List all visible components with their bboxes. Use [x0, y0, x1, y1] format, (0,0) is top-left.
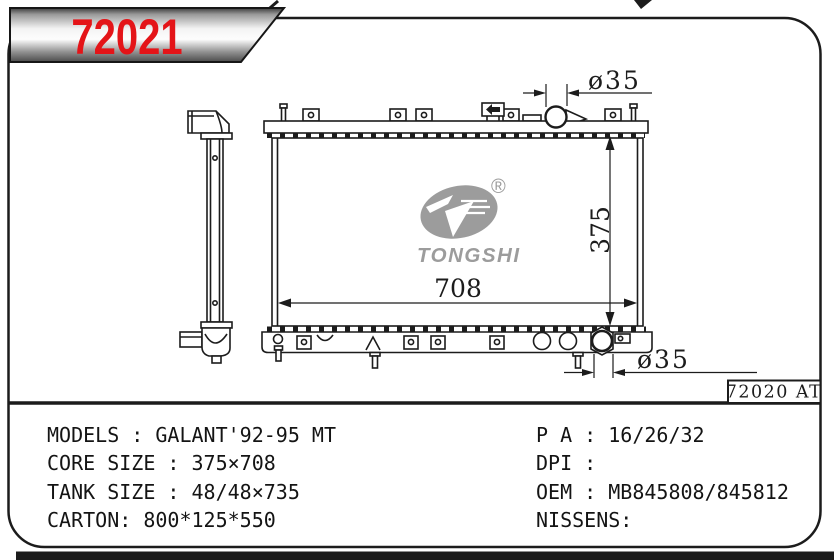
side-core: [207, 139, 223, 322]
crop-marks: [256, 0, 652, 18]
spec-carton: CARTON: 800*125*550: [47, 509, 276, 531]
core-height-label: 375: [586, 206, 615, 254]
spec-core-size: CORE SIZE : 375×708: [47, 452, 276, 474]
spec-pa: P A : 16/26/32: [536, 424, 705, 446]
spec-tank-size: TANK SIZE : 48/48×735: [47, 481, 300, 503]
catalog-page: ø35 375 708 ø35 72020 AT ® TONGSHI: [0, 0, 834, 560]
outlet-diameter-label: ø35: [637, 345, 690, 374]
spec-oem: OEM : MB845808/845812: [536, 481, 789, 503]
spec-models: MODELS : GALANT'92-95 MT: [47, 424, 336, 446]
radiator-technical-drawing: ø35 375 708 ø35 72020 AT ® TONGSHI: [0, 0, 834, 560]
logo-brand-text: TONGSHI: [417, 244, 521, 267]
inlet-diameter-label: ø35: [588, 66, 641, 95]
ref-box: 72020 AT: [726, 381, 823, 404]
spec-nissens: NISSENS:: [536, 509, 632, 531]
port-opening: [560, 333, 577, 350]
part-number: 72021: [71, 9, 182, 65]
ref-label: 72020 AT: [726, 383, 823, 403]
spec-dpi: DPI :: [536, 452, 596, 474]
port-opening: [534, 333, 551, 350]
filler-neck: [546, 107, 567, 128]
bottom-bar: [16, 552, 834, 560]
outlet-port: [591, 327, 613, 355]
registered-trademark-icon: ®: [491, 176, 506, 198]
top-tank: [264, 121, 648, 133]
outlet-pipe: [180, 332, 202, 347]
core-width-label: 708: [434, 274, 482, 303]
bottom-tank-side: [202, 328, 230, 356]
part-number-banner: 72021: [10, 8, 284, 65]
